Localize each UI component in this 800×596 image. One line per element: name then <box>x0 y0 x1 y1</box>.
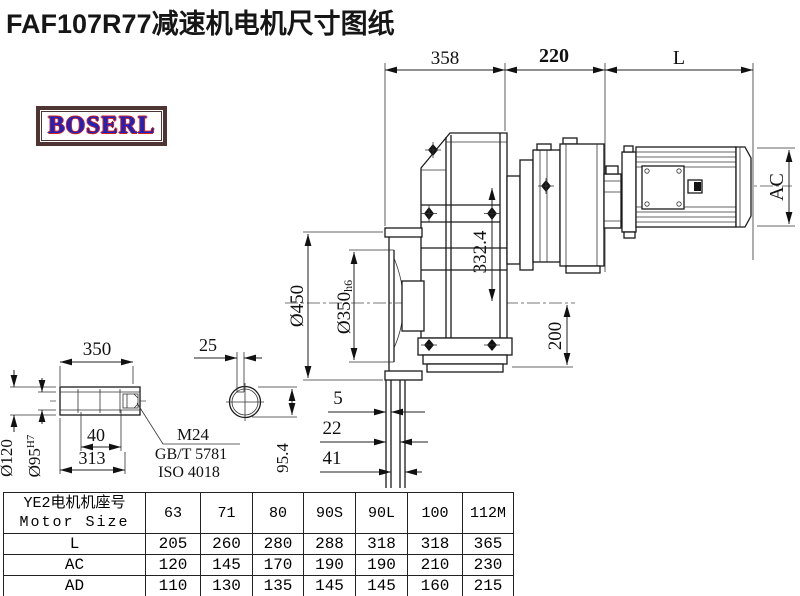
dim-332-4: 332.4 <box>470 230 491 273</box>
motor-rear-cap <box>736 147 751 227</box>
cell: 135 <box>253 576 304 596</box>
dim-shaft-350: 350 <box>83 339 112 360</box>
col-header: 90L <box>356 493 408 534</box>
shaft-detail: 350 Ø120 Ø95H7 40 313 M24 GB/T 5781 ISO … <box>0 339 240 481</box>
dim-350: Ø350 <box>334 292 355 334</box>
adapter-bell <box>507 138 621 273</box>
dim-40: 40 <box>87 425 105 445</box>
cell: 318 <box>408 534 463 555</box>
col-header: 112M <box>463 493 514 534</box>
thread-spec-iso: ISO 4018 <box>158 464 220 481</box>
cell: 110 <box>146 576 201 596</box>
cell: 190 <box>304 555 356 576</box>
dim-h6: h6 <box>341 280 355 292</box>
cell: 145 <box>304 576 356 596</box>
dim-95h7: Ø95H7 <box>25 434 44 477</box>
cell: 210 <box>408 555 463 576</box>
dim-200: 200 <box>545 322 566 351</box>
dim-220: 220 <box>539 45 569 67</box>
ac-dimension: AC <box>757 148 795 226</box>
cell: 130 <box>201 576 253 596</box>
dim-120: Ø120 <box>0 439 16 477</box>
dim-5: 5 <box>333 388 343 409</box>
flange-dimensions: Ø450 Ø350h6 <box>287 232 390 380</box>
thread-spec-gb: GB/T 5781 <box>155 446 227 463</box>
cell: 160 <box>408 576 463 596</box>
cell: 280 <box>253 534 304 555</box>
dim-41: 41 <box>323 448 342 469</box>
dim-450: Ø450 <box>287 285 308 327</box>
row-label: L <box>4 534 146 555</box>
shaft-offset-dimensions: 5 22 41 <box>320 388 428 472</box>
table-row-AC: AC 120 145 170 190 190 210 230 <box>4 555 514 576</box>
header-cn: YE2电机机座号 <box>4 494 145 513</box>
dim-358: 358 <box>431 48 460 69</box>
dim-L: L <box>673 47 685 69</box>
drawing-page: { "title": "FAF107R77减速机电机尺寸图纸", "logo":… <box>0 0 800 596</box>
thread-spec-m24: M24 <box>177 425 210 444</box>
cell: 170 <box>253 555 304 576</box>
dim-22: 22 <box>323 418 342 439</box>
col-header: 80 <box>253 493 304 534</box>
motor <box>622 146 751 238</box>
table-header-row: YE2电机机座号 Motor Size 63 71 80 90S 90L 100… <box>4 493 514 534</box>
dim-313: 313 <box>79 448 106 468</box>
cell: 365 <box>463 534 514 555</box>
cell: 145 <box>201 555 253 576</box>
cell: 215 <box>463 576 514 596</box>
col-header: 100 <box>408 493 463 534</box>
cell: 288 <box>304 534 356 555</box>
col-header: 90S <box>304 493 356 534</box>
header-en: Motor Size <box>4 513 145 532</box>
cell: 190 <box>356 555 408 576</box>
cell: 318 <box>356 534 408 555</box>
cell: 145 <box>356 576 408 596</box>
table-row-AD: AD 110 130 135 145 145 160 215 <box>4 576 514 596</box>
output-flange <box>385 228 424 488</box>
dim-95-4: 95.4 <box>273 443 292 473</box>
row-label: AC <box>4 555 146 576</box>
dim-350h6: Ø350h6 <box>334 280 355 334</box>
cell: 120 <box>146 555 201 576</box>
col-header: 63 <box>146 493 201 534</box>
cell: 230 <box>463 555 514 576</box>
dim-25: 25 <box>199 335 217 355</box>
col-header: 71 <box>201 493 253 534</box>
table-row-L: L 205 260 280 288 318 318 365 <box>4 534 514 555</box>
dim-H7: H7 <box>25 434 37 448</box>
header-motor-size: YE2电机机座号 Motor Size <box>4 493 146 534</box>
cell: 260 <box>201 534 253 555</box>
cell: 205 <box>146 534 201 555</box>
motor-size-table: YE2电机机座号 Motor Size 63 71 80 90S 90L 100… <box>3 492 514 596</box>
gearbox-housing <box>418 133 512 372</box>
dim-95: Ø95 <box>25 448 44 477</box>
row-label: AD <box>4 576 146 596</box>
dim-AC: AC <box>766 173 788 201</box>
